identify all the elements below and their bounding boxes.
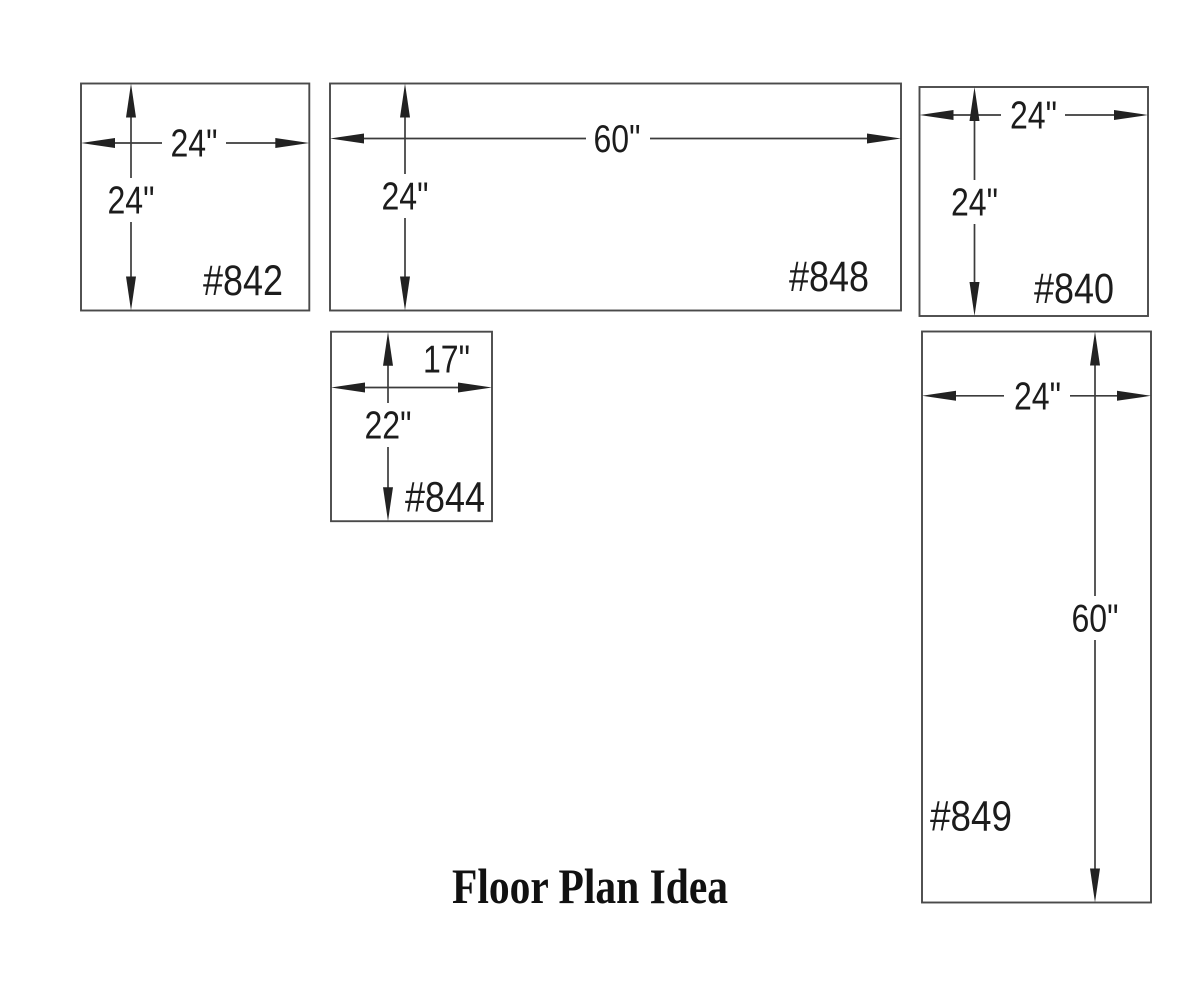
svg-text:17": 17" [423,339,470,382]
svg-text:#849: #849 [930,792,1012,840]
svg-text:#844: #844 [405,473,485,521]
svg-text:24": 24" [1010,95,1057,138]
svg-text:#842: #842 [203,257,283,305]
svg-text:24": 24" [1014,375,1061,418]
svg-text:24": 24" [382,176,429,219]
svg-text:60": 60" [1072,598,1119,641]
svg-text:24": 24" [951,182,998,225]
svg-text:#848: #848 [789,253,869,301]
svg-text:22": 22" [365,405,412,448]
svg-text:24": 24" [171,123,218,166]
svg-text:24": 24" [108,180,155,223]
svg-text:60": 60" [594,118,641,161]
svg-text:Floor Plan Idea: Floor Plan Idea [452,858,728,914]
svg-text:#840: #840 [1034,265,1114,313]
